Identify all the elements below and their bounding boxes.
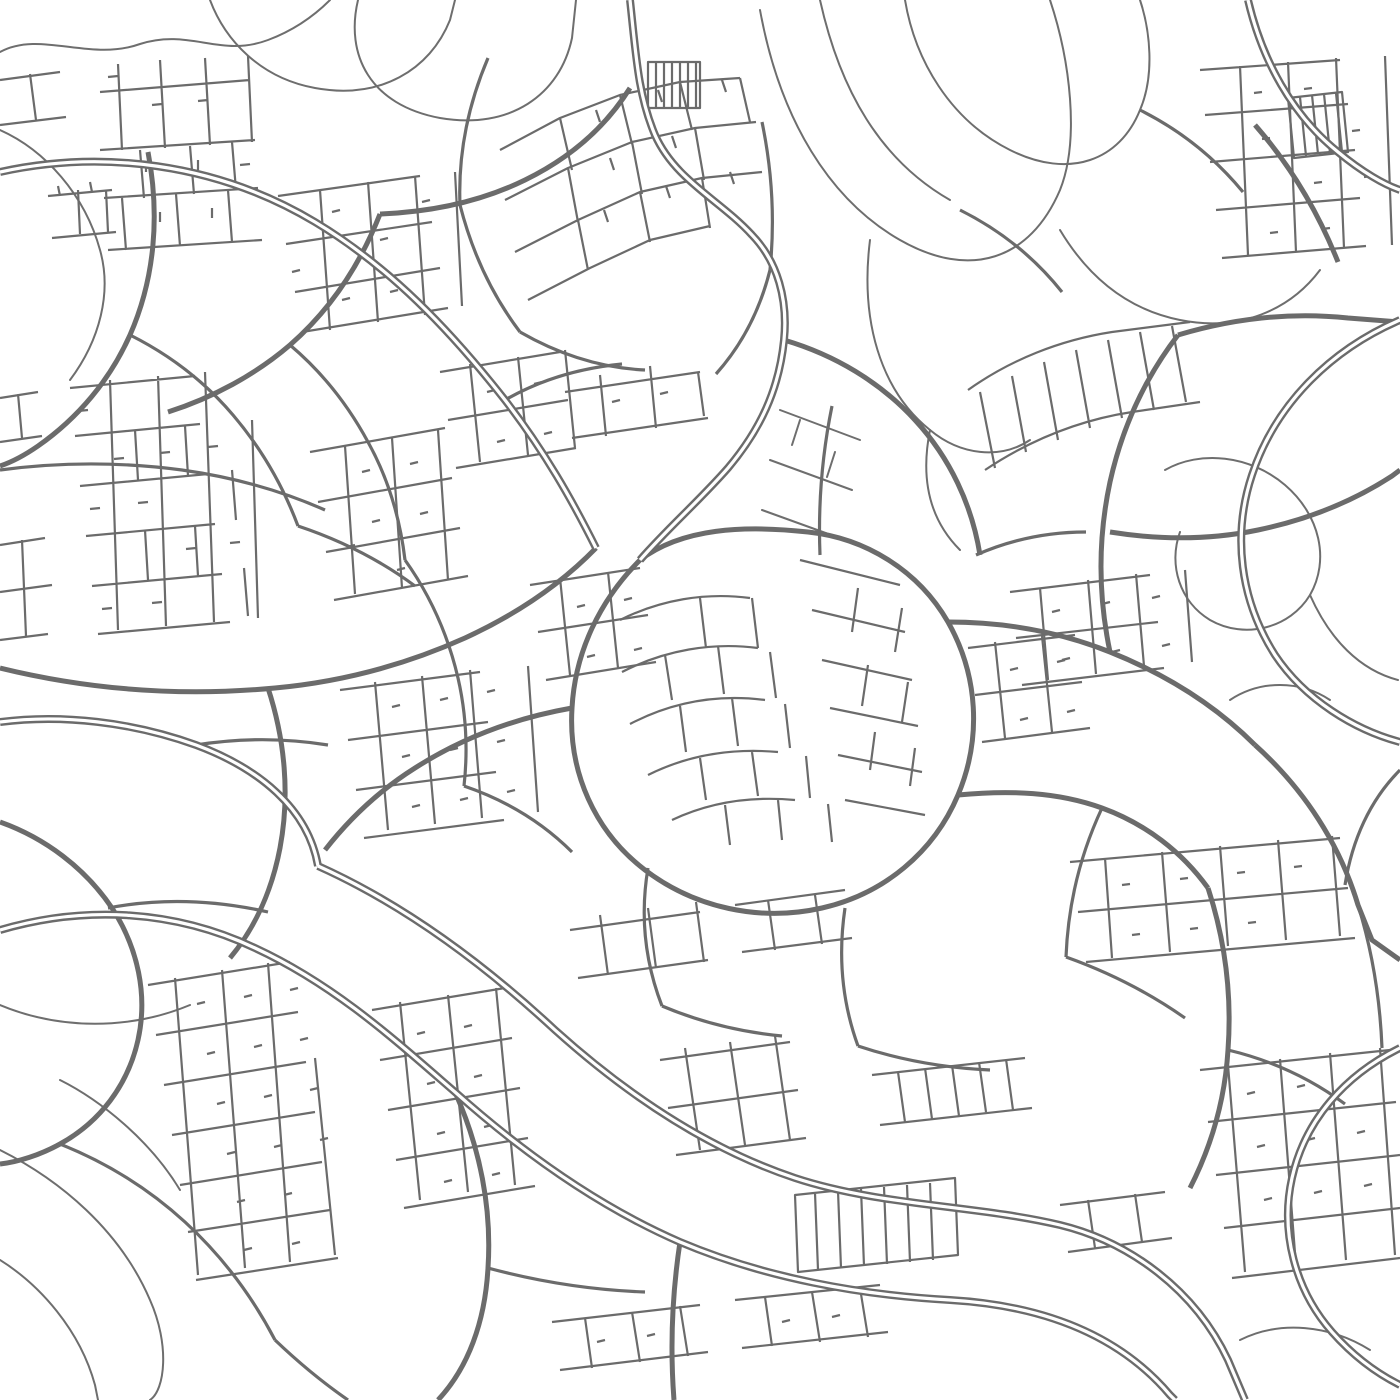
- street-map-canvas: [0, 0, 1400, 1400]
- road-segment: [1066, 957, 1185, 1018]
- road-segment: [620, 596, 832, 845]
- road-segment: [1060, 230, 1320, 323]
- road-segment: [565, 366, 708, 438]
- road-segment: [380, 88, 630, 214]
- road-segment: [0, 392, 52, 640]
- road-segment: [355, 0, 576, 120]
- road-segment: [1066, 808, 1102, 957]
- road-segment: [108, 902, 268, 912]
- road-segment: [716, 270, 770, 374]
- road-segment: [488, 1268, 645, 1292]
- road-segment: [1345, 770, 1400, 885]
- road-segment: [500, 78, 762, 300]
- road-segment: [1228, 1050, 1345, 1104]
- road-segment: [842, 908, 858, 1046]
- road-segment: [196, 740, 328, 745]
- road-segment: [0, 1005, 190, 1024]
- road-segment: [0, 1150, 163, 1400]
- road-segment: [905, 0, 1149, 164]
- road-segment: [148, 962, 338, 1280]
- road-segment: [230, 688, 285, 958]
- road-segment: [644, 868, 662, 1006]
- road-segment: [948, 622, 1255, 745]
- road-segment: [1178, 316, 1400, 335]
- road-segment: [868, 240, 1031, 452]
- road-segment: [762, 410, 860, 540]
- road-segment: [1190, 888, 1229, 1188]
- road-segment: [0, 548, 596, 692]
- road-segment: [1140, 110, 1243, 192]
- road-segment: [795, 1178, 958, 1272]
- road-segment: [648, 62, 700, 108]
- road-segment: [0, 72, 66, 125]
- road-segment: [48, 182, 116, 238]
- road-segment: [968, 322, 1200, 470]
- road-segment: [968, 635, 1090, 742]
- road-segment: [130, 335, 298, 526]
- road-segment: [0, 0, 330, 52]
- road-segment: [405, 560, 466, 786]
- road-segment: [960, 210, 1062, 292]
- road-segment: [0, 1260, 98, 1400]
- road-segment: [672, 1242, 680, 1400]
- road-segment: [630, 0, 785, 560]
- road-segment: [1255, 745, 1400, 960]
- road-segment: [1110, 470, 1400, 538]
- layer-minor: [0, 56, 1400, 1370]
- road-segment: [572, 529, 974, 913]
- road-segment: [820, 0, 950, 200]
- road-segment: [275, 1340, 348, 1400]
- road-segment: [372, 988, 535, 1208]
- road-segment: [310, 428, 468, 600]
- road-segment: [552, 1285, 888, 1370]
- road-segment: [662, 1006, 782, 1036]
- road-segment: [926, 430, 960, 550]
- road-segment: [520, 332, 645, 370]
- road-segment: [858, 1046, 990, 1070]
- road-segment: [100, 56, 262, 250]
- road-segment: [958, 793, 1208, 888]
- road-segment: [976, 532, 1086, 555]
- road-segment: [800, 560, 925, 815]
- road-segment: [460, 58, 488, 205]
- road-segment: [1310, 595, 1398, 680]
- road-segment: [0, 822, 142, 1164]
- road-segment: [784, 340, 980, 555]
- map-viewport: [0, 0, 1400, 1400]
- road-segment: [630, 0, 785, 560]
- road-segment: [460, 205, 520, 332]
- layer-collector: [0, 58, 1400, 1400]
- road-segment: [660, 1036, 806, 1155]
- road-segment: [1358, 905, 1382, 1048]
- road-segment: [278, 172, 462, 332]
